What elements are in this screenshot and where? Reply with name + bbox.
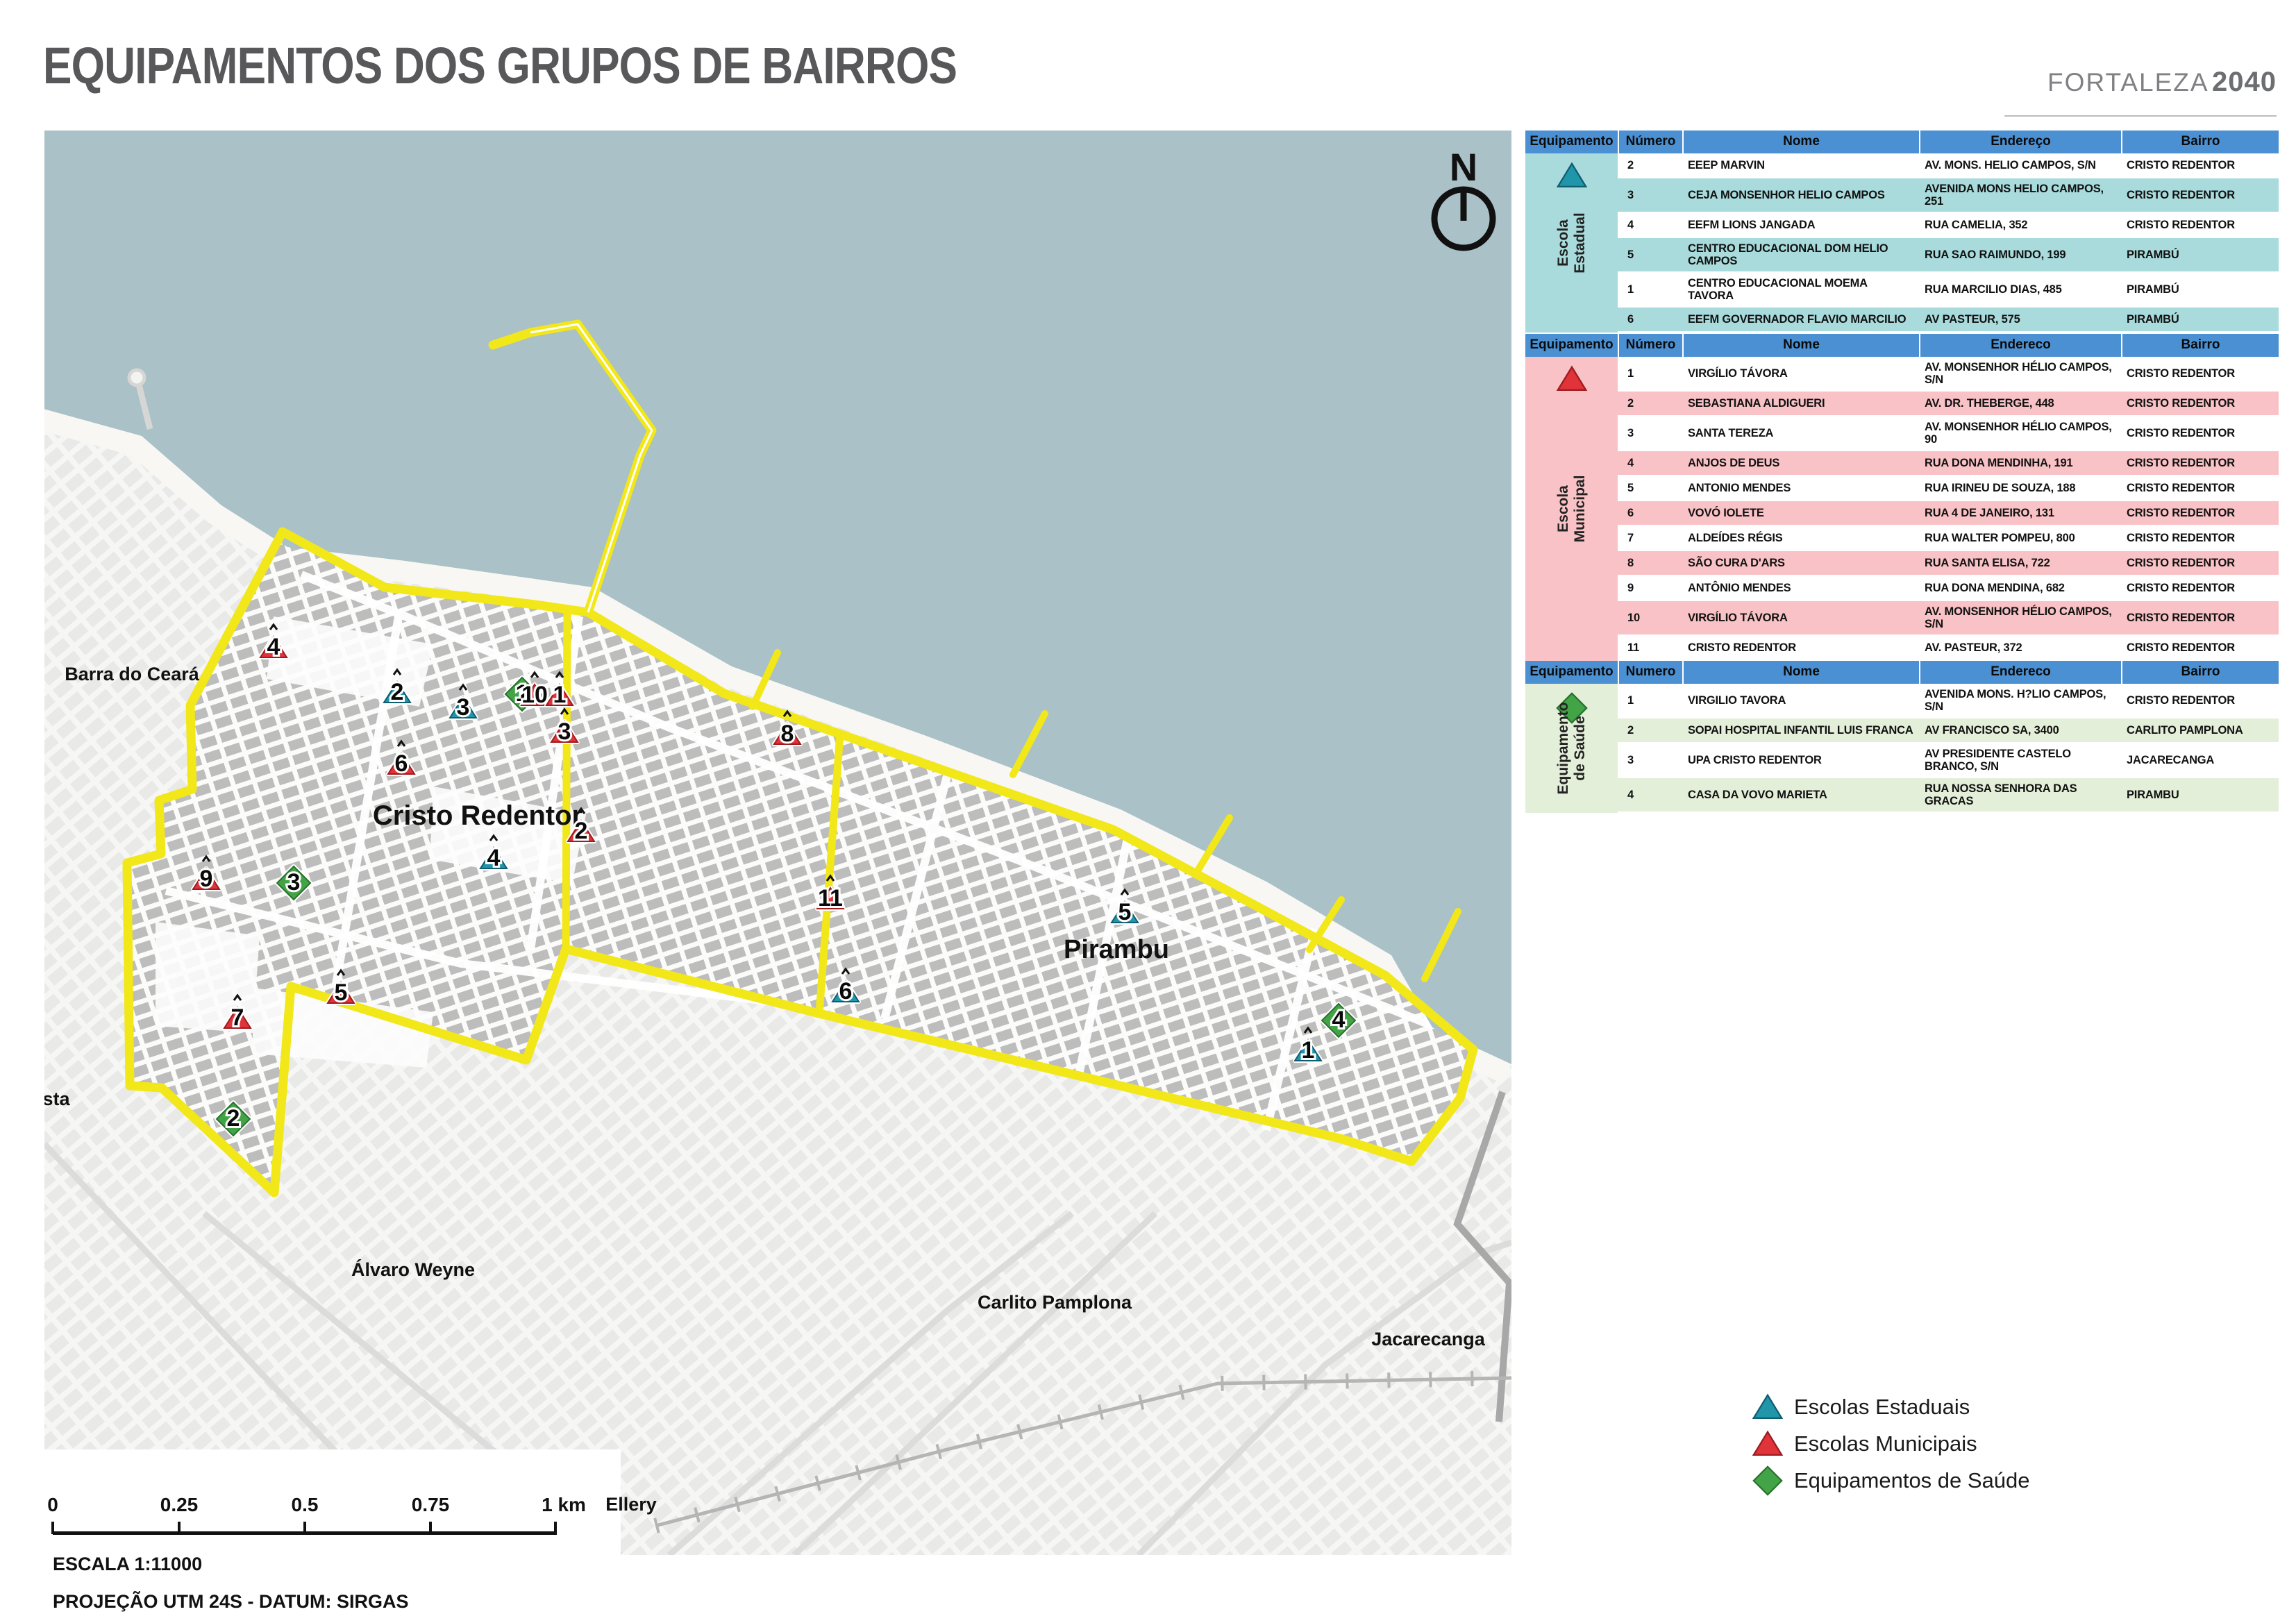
map-label-alvaro-weyne: Álvaro Weyne: [351, 1259, 475, 1280]
marker-number: 3: [457, 694, 470, 721]
cell-end: AV. PASTEUR, 372: [1919, 636, 2121, 659]
cell-num: 5: [1618, 476, 1682, 500]
column-header: Nome: [1682, 661, 1919, 684]
cell-nome: UPA CRISTO REDENTOR: [1682, 743, 1919, 777]
cell-end: AV. MONS. HELIO CAMPOS, S/N: [1919, 153, 2121, 177]
marker-number: 9: [200, 866, 213, 892]
table-row: 5CENTRO EDUCACIONAL DOM HELIO CAMPOSRUA …: [1618, 238, 2279, 273]
table-header-row: EquipamentoNúmeroNomeEnderecoBairro: [1525, 334, 2279, 357]
cell-num: 11: [1618, 636, 1682, 659]
column-header: Bairro: [2121, 334, 2279, 357]
marker-number: 3: [287, 869, 301, 895]
marker-number: 5: [1118, 899, 1132, 925]
cell-nome: VIRGÍLIO TÁVORA: [1682, 601, 1919, 634]
brand-divider: [2004, 115, 2277, 117]
cell-end: RUA CAMELIA, 352: [1919, 213, 2121, 237]
table-row: 1VIRGILIO TAVORAAVENIDA MONS. H?LIO CAMP…: [1618, 684, 2279, 718]
marker-number: 3: [558, 718, 571, 745]
cell-end: RUA DONA MENDINHA, 191: [1919, 451, 2121, 475]
cell-nome: ALDEÍDES RÉGIS: [1682, 526, 1919, 550]
table-header-row: EquipamentoNumeroNomeEnderecoBairro: [1525, 661, 2279, 684]
cell-num: 6: [1618, 308, 1682, 331]
marker-number: 4: [487, 845, 501, 871]
cell-num: 6: [1618, 501, 1682, 525]
cell-bairro: CARLITO PAMPLONA: [2121, 718, 2279, 742]
table-row: 5ANTONIO MENDESRUA IRINEU DE SOUZA, 188C…: [1618, 476, 2279, 501]
cell-end: RUA SAO RAIMUNDO, 199: [1919, 238, 2121, 271]
cell-nome: EEFM GOVERNADOR FLAVIO MARCILIO: [1682, 308, 1919, 331]
cell-bairro: CRISTO REDENTOR: [2121, 601, 2279, 634]
cell-end: AV PRESIDENTE CASTELO BRANCO, S/N: [1919, 743, 2121, 777]
group-label: EscolaMunicipal: [1555, 475, 1588, 542]
estadual-triangle-icon: [1556, 162, 1588, 189]
map-label-ellery: Ellery: [605, 1494, 657, 1515]
table-header-row: EquipamentoNúmeroNomeEndereçoBairro: [1525, 131, 2279, 153]
map-svg: Barra do CearáCristo RedentorPirambuÁlva…: [44, 131, 1511, 1555]
cell-end: RUA IRINEU DE SOUZA, 188: [1919, 476, 2121, 500]
cell-end: RUA NOSSA SENHORA DAS GRACAS: [1919, 778, 2121, 811]
cell-num: 2: [1618, 392, 1682, 415]
table-row: 7ALDEÍDES RÉGISRUA WALTER POMPEU, 800CRI…: [1618, 526, 2279, 551]
cell-num: 4: [1618, 451, 1682, 475]
cell-nome: ANTONIO MENDES: [1682, 476, 1919, 500]
marker-number: 6: [839, 978, 853, 1004]
cell-bairro: CRISTO REDENTOR: [2121, 476, 2279, 500]
cell-bairro: CRISTO REDENTOR: [2121, 392, 2279, 415]
projection-text: PROJEÇÃO UTM 24S - DATUM: SIRGAS: [53, 1591, 409, 1613]
cell-nome: SEBASTIANA ALDIGUERI: [1682, 392, 1919, 415]
cell-end: AV. MONSENHOR HÉLIO CAMPOS, S/N: [1919, 601, 2121, 634]
cell-num: 1: [1618, 357, 1682, 390]
cell-bairro: JACARECANGA: [2121, 743, 2279, 777]
cell-bairro: CRISTO REDENTOR: [2121, 178, 2279, 212]
legend-label: Escolas Municipais: [1794, 1431, 1977, 1456]
table-row: 4CASA DA VOVO MARIETARUA NOSSA SENHORA D…: [1618, 778, 2279, 813]
cell-num: 3: [1618, 743, 1682, 777]
group-cell: Equipamentode Saúde: [1525, 684, 1618, 813]
cell-end: AVENIDA MONS. H?LIO CAMPOS, S/N: [1919, 684, 2121, 717]
cell-end: AV. MONSENHOR HÉLIO CAMPOS, 90: [1919, 417, 2121, 450]
brand-name: FORTALEZA: [2047, 68, 2209, 96]
cell-nome: ANTÔNIO MENDES: [1682, 576, 1919, 600]
cell-bairro: CRISTO REDENTOR: [2121, 153, 2279, 177]
marker-number: 2: [391, 679, 404, 705]
marker-number: 2: [575, 818, 588, 844]
marker-number: 4: [1332, 1007, 1346, 1033]
marker-number: 4: [267, 634, 280, 660]
legend-item-saude: Equipamentos de Saúde: [1750, 1462, 2030, 1499]
legend-item-estadual: Escolas Estaduais: [1750, 1388, 2030, 1425]
cell-bairro: CRISTO REDENTOR: [2121, 684, 2279, 717]
cell-bairro: CRISTO REDENTOR: [2121, 551, 2279, 575]
cell-end: RUA 4 DE JANEIRO, 131: [1919, 501, 2121, 525]
column-header: Equipamento: [1525, 334, 1618, 357]
group-cell: EscolaMunicipal: [1525, 357, 1618, 661]
cell-nome: SÃO CURA D'ARS: [1682, 551, 1919, 575]
cell-bairro: CRISTO REDENTOR: [2121, 501, 2279, 525]
cell-bairro: CRISTO REDENTOR: [2121, 576, 2279, 600]
cell-nome: VIRGÍLIO TÁVORA: [1682, 357, 1919, 390]
table-row: 9ANTÔNIO MENDESRUA DONA MENDINA, 682CRIS…: [1618, 576, 2279, 601]
north-label: N: [1450, 145, 1477, 189]
cell-nome: EEEP MARVIN: [1682, 153, 1919, 177]
group-label: Equipamentode Saúde: [1555, 702, 1588, 794]
cell-nome: CASA DA VOVO MARIETA: [1682, 778, 1919, 811]
column-header: Bairro: [2121, 661, 2279, 684]
cell-bairro: CRISTO REDENTOR: [2121, 636, 2279, 659]
cell-num: 9: [1618, 576, 1682, 600]
column-header: Endereco: [1919, 661, 2121, 684]
cell-num: 1: [1618, 684, 1682, 717]
map-label-cristo-redentor: Cristo Redentor: [373, 800, 583, 831]
legend-label: Equipamentos de Saúde: [1794, 1468, 2030, 1493]
municipal-triangle-icon: [1556, 365, 1588, 392]
cell-bairro: PIRAMBÚ: [2121, 238, 2279, 271]
estadual-triangle-icon: [1752, 1393, 1784, 1420]
column-header: Numero: [1618, 661, 1682, 684]
column-header: Equipamento: [1525, 131, 1618, 153]
marker-number: 10: [521, 682, 548, 708]
map-legend: Escolas Estaduais Escolas Municipais Equ…: [1750, 1388, 2030, 1499]
table-row: 3SANTA TEREZAAV. MONSENHOR HÉLIO CAMPOS,…: [1618, 417, 2279, 451]
marker-number: 1: [553, 682, 567, 708]
cell-bairro: PIRAMBÚ: [2121, 308, 2279, 331]
column-header: Número: [1618, 334, 1682, 357]
map-canvas: Barra do CearáCristo RedentorPirambuÁlva…: [44, 131, 1511, 1555]
cell-end: RUA DONA MENDINA, 682: [1919, 576, 2121, 600]
map-label-carlito-pamplona: Carlito Pamplona: [978, 1292, 1132, 1313]
page-title: EQUIPAMENTOS DOS GRUPOS DE BAIRROS: [43, 36, 957, 95]
cell-num: 3: [1618, 417, 1682, 450]
cell-num: 3: [1618, 178, 1682, 212]
cell-nome: VOVÓ IOLETE: [1682, 501, 1919, 525]
cell-nome: SANTA TEREZA: [1682, 417, 1919, 450]
cell-num: 10: [1618, 601, 1682, 634]
cell-bairro: CRISTO REDENTOR: [2121, 417, 2279, 450]
brand-logo: FORTALEZA 2040: [1999, 67, 2277, 98]
column-header: Número: [1618, 131, 1682, 153]
municipal-triangle-icon: [1752, 1430, 1784, 1457]
column-header: Nome: [1682, 334, 1919, 357]
table-equipamento-saude: EquipamentoNumeroNomeEnderecoBairro Equi…: [1525, 661, 2279, 813]
cell-nome: CENTRO EDUCACIONAL MOEMA TAVORA: [1682, 273, 1919, 306]
table-row: 3UPA CRISTO REDENTORAV PRESIDENTE CASTEL…: [1618, 743, 2279, 778]
cell-end: AV. DR. THEBERGE, 448: [1919, 392, 2121, 415]
cell-end: AVENIDA MONS HELIO CAMPOS, 251: [1919, 178, 2121, 212]
cell-end: RUA WALTER POMPEU, 800: [1919, 526, 2121, 550]
cell-end: AV. MONSENHOR HÉLIO CAMPOS, S/N: [1919, 357, 2121, 390]
scalebar-backing: [44, 1449, 621, 1555]
scale-text: ESCALA 1:11000: [53, 1554, 202, 1575]
marker-number: 5: [335, 979, 348, 1006]
cell-nome: ANJOS DE DEUS: [1682, 451, 1919, 475]
cell-bairro: PIRAMBU: [2121, 778, 2279, 811]
marker-number: 7: [231, 1004, 244, 1031]
column-header: Endereço: [1919, 131, 2121, 153]
table-row: 1VIRGÍLIO TÁVORAAV. MONSENHOR HÉLIO CAMP…: [1618, 357, 2279, 392]
table-row: 11CRISTO REDENTORAV. PASTEUR, 372CRISTO …: [1618, 636, 2279, 661]
cell-bairro: CRISTO REDENTOR: [2121, 213, 2279, 237]
table-row: 1CENTRO EDUCACIONAL MOEMA TAVORARUA MARC…: [1618, 273, 2279, 308]
cell-nome: CEJA MONSENHOR HELIO CAMPOS: [1682, 178, 1919, 212]
cell-bairro: CRISTO REDENTOR: [2121, 526, 2279, 550]
cell-nome: VIRGILIO TAVORA: [1682, 684, 1919, 717]
table-row: 3CEJA MONSENHOR HELIO CAMPOSAVENIDA MONS…: [1618, 178, 2279, 213]
cell-end: AV FRANCISCO SA, 3400: [1919, 718, 2121, 742]
legend-label: Escolas Estaduais: [1794, 1395, 1970, 1420]
cell-bairro: CRISTO REDENTOR: [2121, 451, 2279, 475]
table-row: 2EEEP MARVINAV. MONS. HELIO CAMPOS, S/NC…: [1618, 153, 2279, 178]
cell-nome: SOPAI HOSPITAL INFANTIL LUIS FRANCA: [1682, 718, 1919, 742]
group-triangle-icon: [1556, 365, 1588, 396]
group-label: EscolaEstadual: [1555, 212, 1588, 274]
saude-diamond-icon: [1752, 1465, 1783, 1496]
marker-number: 6: [395, 750, 408, 777]
cell-bairro: CRISTO REDENTOR: [2121, 357, 2279, 390]
column-header: Equipamento: [1525, 661, 1618, 684]
cell-num: 4: [1618, 213, 1682, 237]
cell-num: 4: [1618, 778, 1682, 811]
map-label-barra-do-ceara: Barra do Ceará: [65, 664, 200, 684]
table-row: 10VIRGÍLIO TÁVORAAV. MONSENHOR HÉLIO CAM…: [1618, 601, 2279, 636]
table-row: 4EEFM LIONS JANGADARUA CAMELIA, 352CRIST…: [1618, 213, 2279, 238]
map-label-jacarecanga: Jacarecanga: [1371, 1329, 1486, 1349]
cell-nome: CRISTO REDENTOR: [1682, 636, 1919, 659]
brand-year: 2040: [2212, 67, 2277, 97]
column-header: Endereco: [1919, 334, 2121, 357]
cell-bairro: PIRAMBÚ: [2121, 273, 2279, 306]
cell-num: 1: [1618, 273, 1682, 306]
group-triangle-icon: [1556, 162, 1588, 192]
cell-num: 7: [1618, 526, 1682, 550]
table-row: 8SÃO CURA D'ARSRUA SANTA ELISA, 722CRIST…: [1618, 551, 2279, 576]
table-row: 6VOVÓ IOLETERUA 4 DE JANEIRO, 131CRISTO …: [1618, 501, 2279, 526]
map-label-floresta: Floresta: [44, 1088, 70, 1109]
legend-item-municipal: Escolas Municipais: [1750, 1425, 2030, 1462]
table-row: 6EEFM GOVERNADOR FLAVIO MARCILIOAV PASTE…: [1618, 308, 2279, 333]
cell-end: AV PASTEUR, 575: [1919, 308, 2121, 331]
table-row: 4ANJOS DE DEUSRUA DONA MENDINHA, 191CRIS…: [1618, 451, 2279, 476]
marker-number: 11: [818, 885, 843, 911]
marker-number: 8: [781, 721, 794, 747]
cell-nome: CENTRO EDUCACIONAL DOM HELIO CAMPOS: [1682, 238, 1919, 271]
marker-number: 1: [1302, 1037, 1315, 1063]
table-escola-municipal: EquipamentoNúmeroNomeEnderecoBairro Esco…: [1525, 334, 2279, 661]
group-cell: EscolaEstadual: [1525, 153, 1618, 333]
column-header: Bairro: [2121, 131, 2279, 153]
marker-number: 2: [227, 1105, 240, 1132]
cell-end: RUA SANTA ELISA, 722: [1919, 551, 2121, 575]
cell-nome: EEFM LIONS JANGADA: [1682, 213, 1919, 237]
cell-num: 5: [1618, 238, 1682, 271]
map-label-pirambu: Pirambu: [1064, 935, 1169, 964]
table-row: 2SOPAI HOSPITAL INFANTIL LUIS FRANCAAV F…: [1618, 718, 2279, 743]
table-row: 2SEBASTIANA ALDIGUERIAV. DR. THEBERGE, 4…: [1618, 392, 2279, 417]
cell-num: 2: [1618, 718, 1682, 742]
cell-num: 8: [1618, 551, 1682, 575]
cell-num: 2: [1618, 153, 1682, 177]
cell-end: RUA MARCILIO DIAS, 485: [1919, 273, 2121, 306]
table-escola-estadual: EquipamentoNúmeroNomeEndereçoBairro Esco…: [1525, 131, 2279, 333]
column-header: Nome: [1682, 131, 1919, 153]
